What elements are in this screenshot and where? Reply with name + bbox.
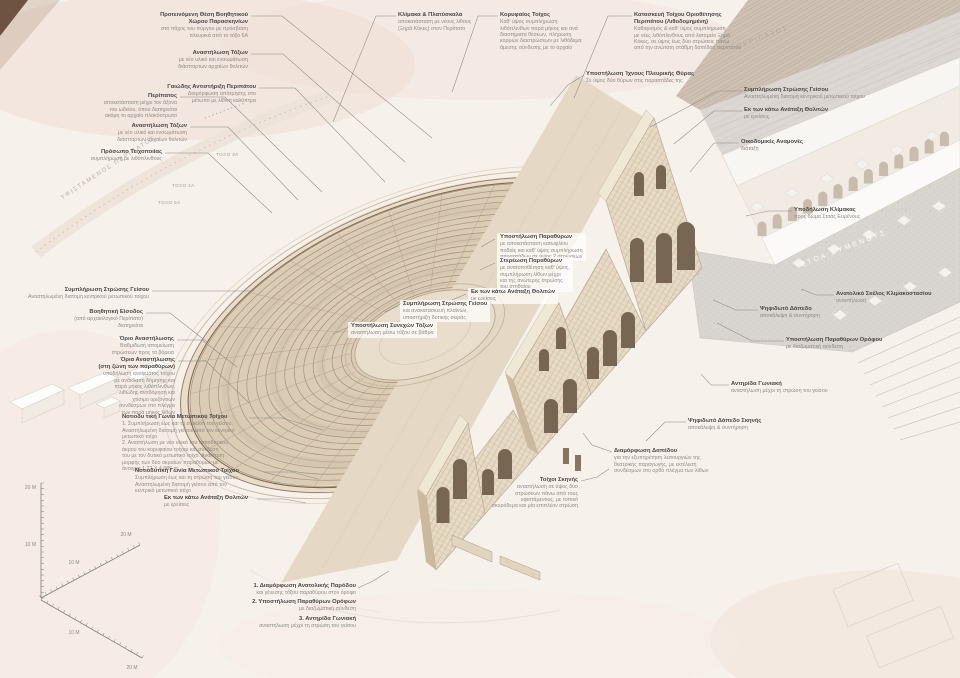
annotation-building-remains: Οικοδομικές Αναμονέςδιάταξη [741,139,803,153]
axis-label-u20: 20 M [120,532,131,538]
annotation-sw-corner-south: Νοτιοδυτική Γωνία Μετωπικού ΤοίχουΣυμπλή… [135,468,240,494]
annotation-sw-corner-main: Νοτιοδυ τική Γωνία Μετωπικού Τοίχου1. Συ… [122,414,235,473]
legend-item-3: 3. Αντηρίδα Γωνιακήαναστήλωση μέχρι τη σ… [252,616,356,629]
annotation-stair-landings: Κλίμακα & Πλατύσκαλααποκατάσταση με νέου… [398,12,471,32]
annotation-peripatos-retaining: Γαιώδης Αντιστήριξη ΠεριπάτουΔιαμόρφωση … [167,84,256,104]
legend: 1. Διαμόρφωση Ανατολικής Παρόδουκαι γένε… [252,583,356,632]
annotation-backstage-area: Προτεινόμενη Θέση ΒοηθητικούΧώρου Παρασκ… [160,12,248,39]
annotation-east-stair-flight: Ανατολικό Σκέλος Κλιμακοστασίουαναστήλωσ… [836,291,932,305]
annotation-mosaic-floor: Ψηφιδωτό Δάπεδοαποκάλυψη & συντήρηση [760,306,820,320]
annotation-cornice-course-center: Συμπλήρωση Στρώσης Γείσουκαι ανακατασκευ… [400,300,490,322]
annotation-cornice-course-left: Συμπλήρωση Στρώσης ΓείσουΑναστηλωμένη δι… [28,287,149,301]
annotation-window-fixing: Στερέωση Παραθύρωνμε ανατοποθέτηση καθ' … [497,257,573,292]
arch-tag-3a: ΤΟΞΟ 3Α [216,152,239,157]
axis-label-l10: 10 M [68,630,79,636]
legend-item-1: 1. Διαμόρφωση Ανατολικής Παρόδουκαι γένε… [252,583,356,596]
annotation-vault-realignment-south: Εκ των κάτω Ανάταξη Θολιτώνμε ερείσεις [164,495,248,509]
annotation-auxiliary-entrance: Βοηθητική Είσοδος(από αρχαιολογικό Περίπ… [74,309,143,329]
annotation-stoa-stair-marking: Υποδήλωση Κλίμακαςπρος δώμα Στοάς Ευμένο… [794,207,860,221]
arch-tag-5a: ΤΟΞΟ 5Α [158,200,181,205]
legend-item-2: 2. Υποστήλωση Παραθύρων Ορόφωνμε διαζωμα… [252,599,356,612]
annotation-stage-mosaic-floor: Ψηφιδωτό Δάπεδο Σκηνήςαποκάλυψη & συντήρ… [688,418,761,432]
annotation-side-door-shoring: Υποστήλωση Ίχνους Πλευρικής ΘύραςΣε ύψος… [586,71,694,85]
annotation-corner-buttress: Αντηρίδα Γωνιακήαναστήλωση μέχρι τη στρώ… [731,381,828,395]
annotation-stage-walls: Τοίχοι Σκηνήςαναστήλωση σε ύψος δύοστρώσ… [492,477,578,510]
annotation-peripatos: Περίπατοςαποκατάσταση μέχρι τον άξονατου… [104,93,177,119]
annotation-crown-wall: Κορυφαίος ΤοίχοςΚαθ' ύψος συμπλήρωσηλιθό… [500,12,581,51]
annotation-upper-window-shoring: Υποστήλωση Παραθύρων Ορόφουμε διαζωματικ… [786,337,882,351]
annotation-arch-restoration-north: Αναστήλωση Τόξωνμε νέο υλικό και ενσωμάτ… [178,50,248,70]
annotation-continuous-arch-shoring: Υποστήλωση Συνεχών Τόξωναναστήλωση μέσω … [348,322,437,338]
annotation-restoration-limit: Όριο ΑναστήλωσηςΒαθμιδωτή απομείωσηστρώσ… [112,336,174,356]
annotation-restoration-limits-windows: Όρια Αναστήλωσης(στη ζώνη των παραθύρων)… [98,357,175,416]
annotation-floor-arrangement: Διαμόρφωση Δαπέδουγια την εξυπηρέτηση λε… [614,448,708,474]
annotation-vault-realignment-right: Εκ των κάτω Ανάταξη Θολιτώνμε ερείσεις [744,107,828,121]
restoration-drawing-sheet: 20 M 10 M 20 M 10 M 10 M 20 M ΥΦΙΣΤΑΜΕΝΟ… [0,0,960,678]
annotation-masonry-face: Πρόσωπο Τειχοποιίαςσυμπλήρωση με λιθόπλι… [91,149,162,163]
axis-label-u10: 10 M [68,560,79,566]
axis-label-l20: 20 M [126,665,137,671]
annotation-arch-restoration-west: Αναστήλωση Τόξωνμε νέο υλικό και ενσωμάτ… [117,123,187,143]
annotation-boundary-wall: Κατασκευή Τοίχου ΟριοθέτησηςΠεριπάτου (Λ… [634,12,741,52]
axis-label-v10: 10 M [25,542,36,548]
axis-label-v20: 20 M [25,485,36,491]
annotation-cornice-course-right: Συμπλήρωση Στρώσης ΓείσουΑναστηλωμένη δι… [744,87,865,101]
arch-tag-4a: ΤΟΞΟ 4Α [172,183,195,188]
